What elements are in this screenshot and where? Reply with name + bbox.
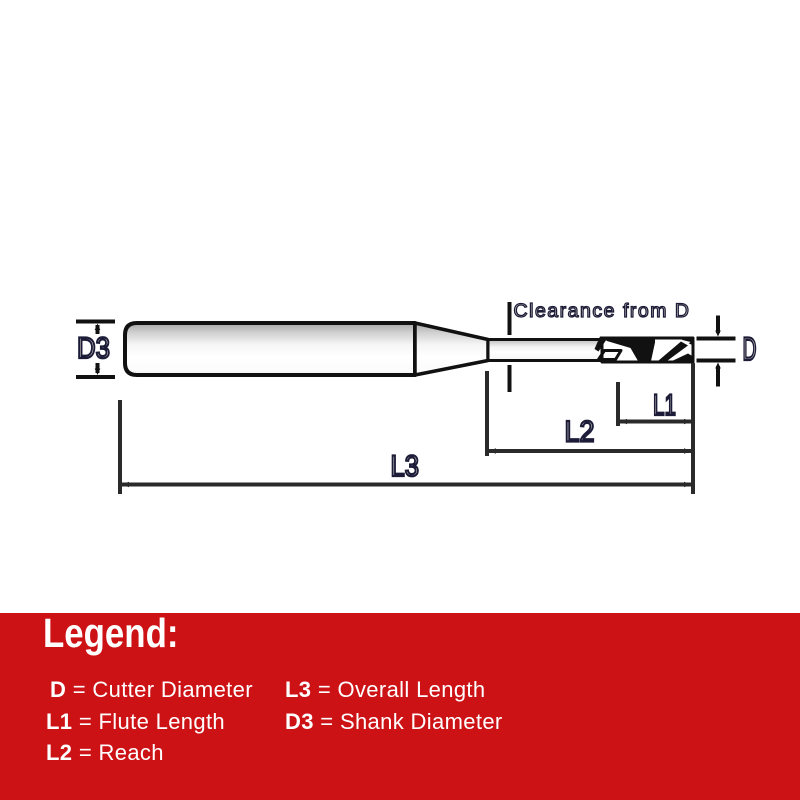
- svg-text:L1: L1: [653, 389, 676, 422]
- svg-text:D3: D3: [77, 332, 110, 365]
- svg-text:L3: L3: [391, 450, 420, 483]
- svg-text:L2: L2: [565, 416, 595, 449]
- svg-text:D: D: [743, 331, 757, 367]
- svg-text:Clearance from D: Clearance from D: [514, 300, 690, 322]
